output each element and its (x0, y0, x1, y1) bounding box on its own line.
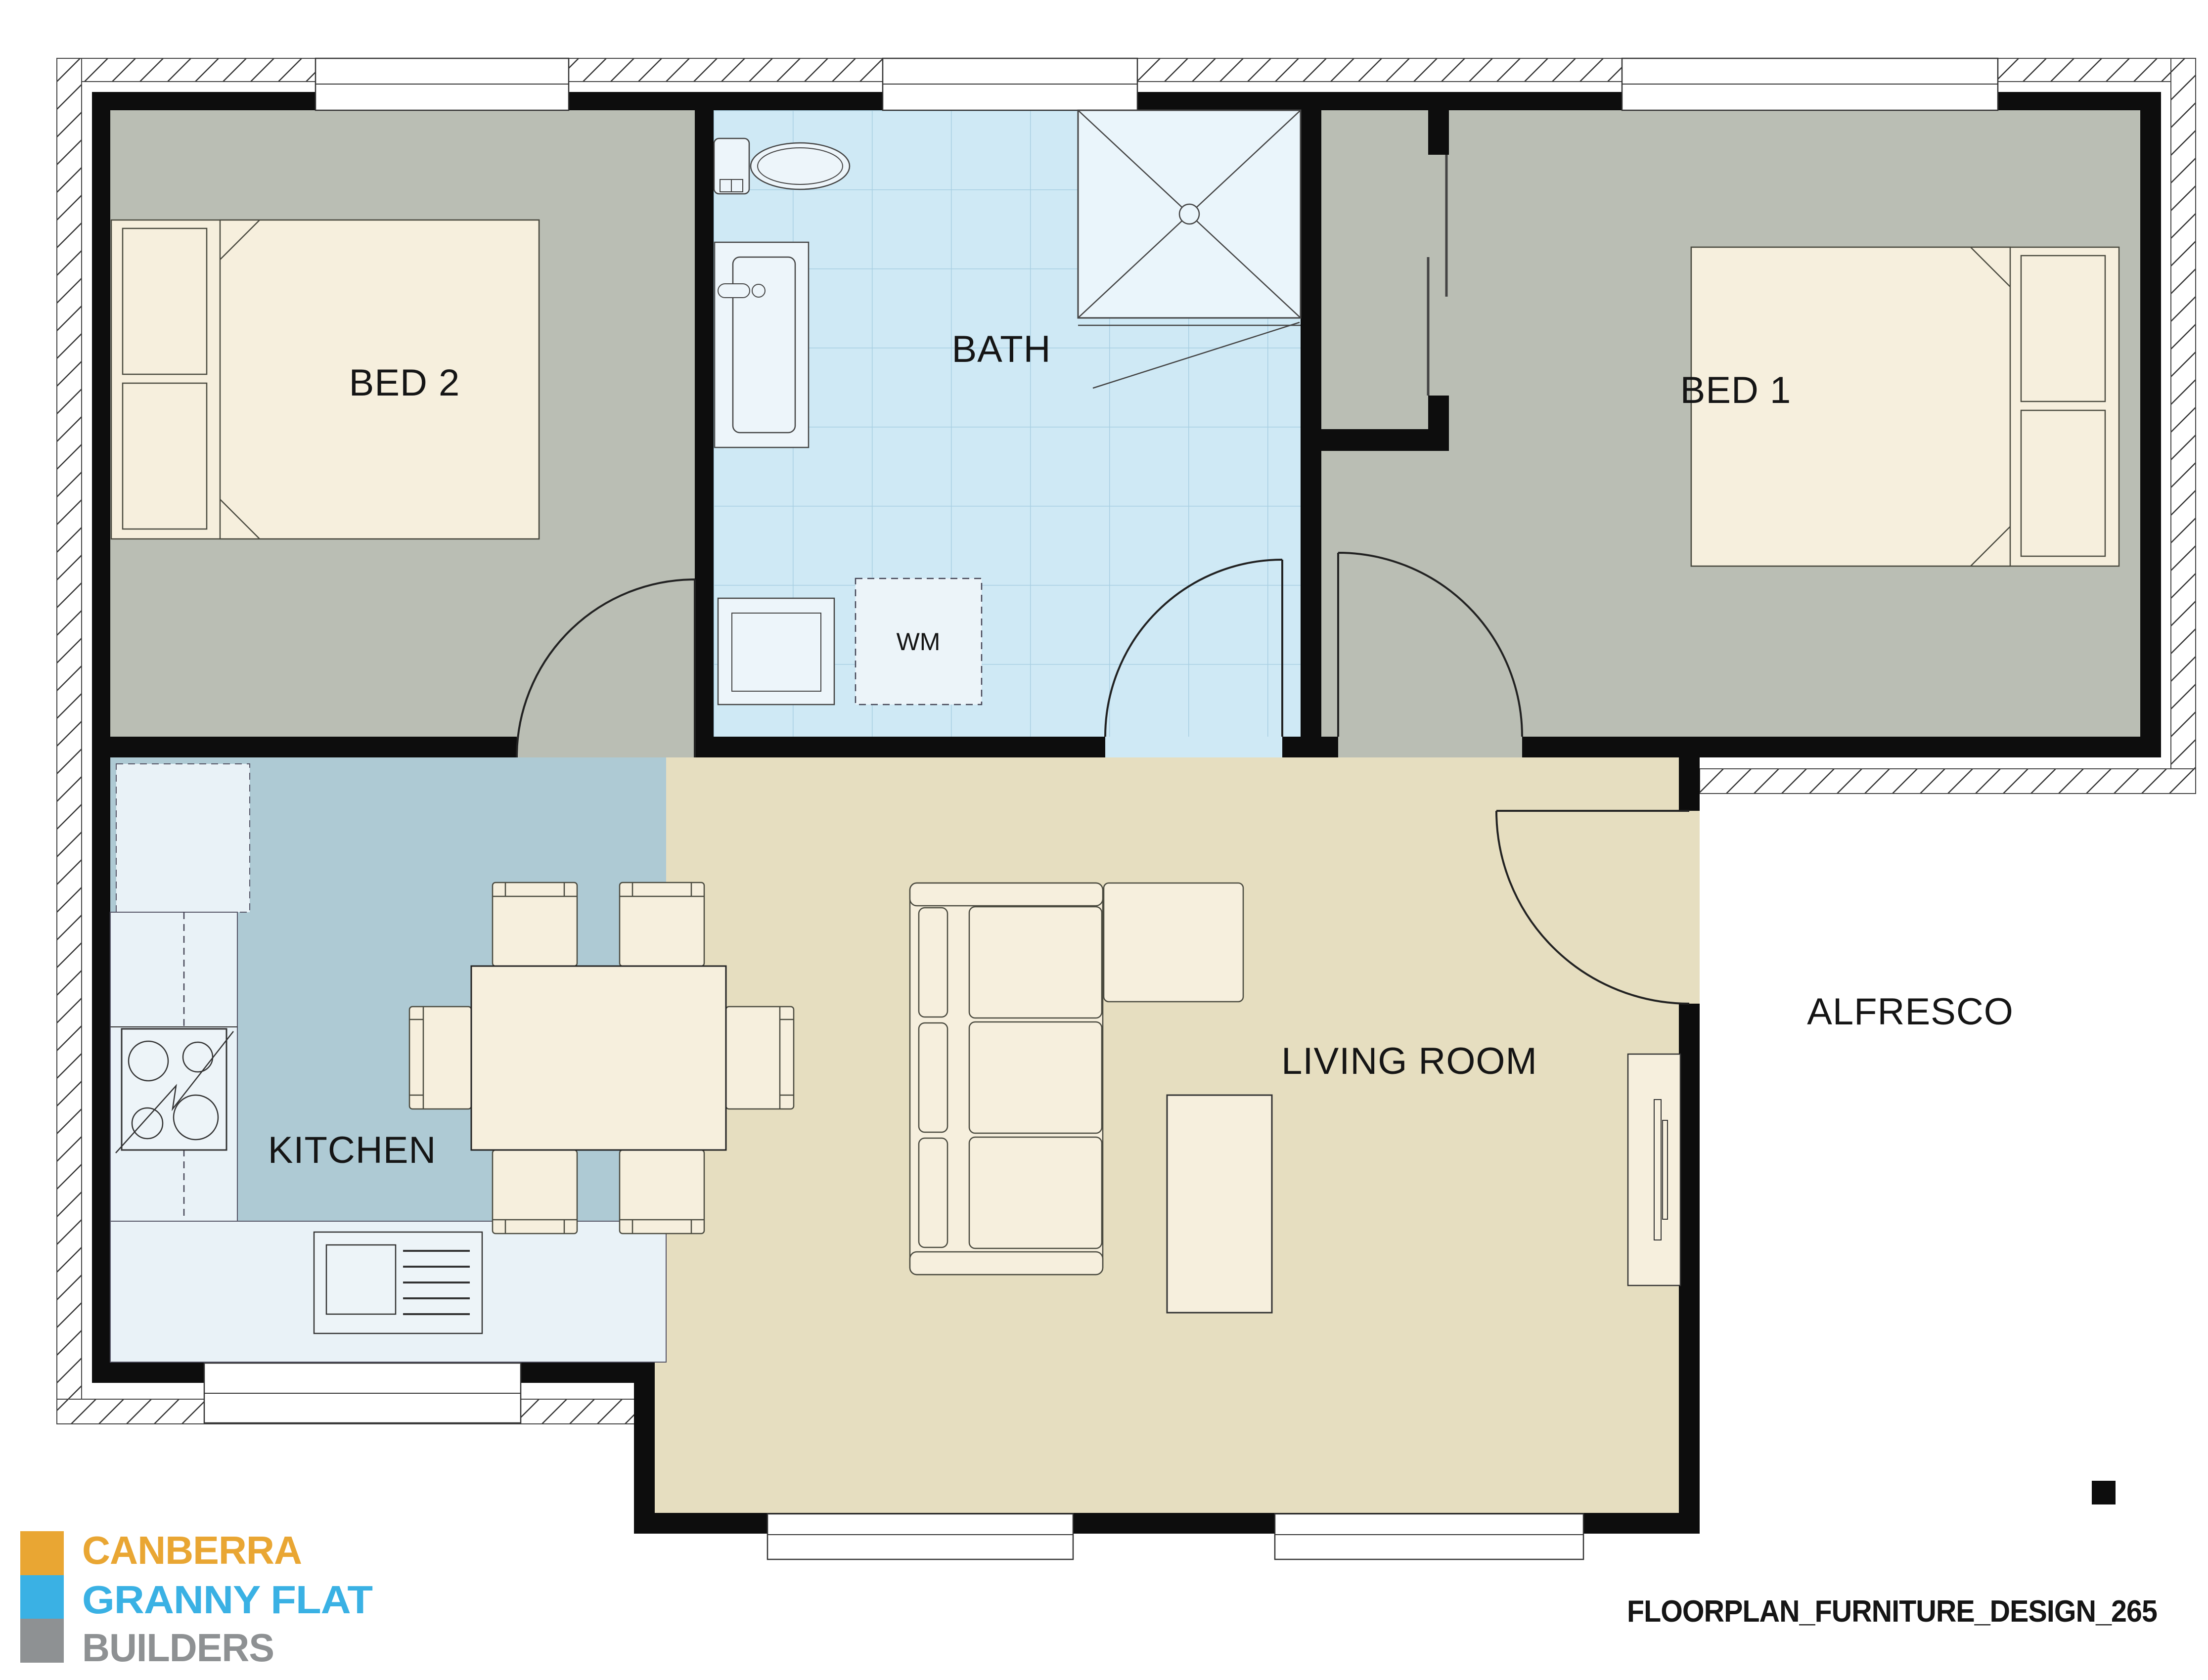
sofa-armrest-bottom (910, 1252, 1103, 1275)
label-bed2: BED 2 (349, 362, 460, 404)
brand-word-2: GRANNY FLAT (82, 1578, 373, 1622)
label-kitchen: KITCHEN (268, 1129, 437, 1171)
wall-right (2140, 92, 2161, 757)
label-alfresco: ALFRESCO (1807, 991, 2014, 1033)
dining-chair-left (409, 1007, 471, 1109)
dining-chair-bottom-2 (620, 1150, 704, 1234)
label-washing-machine: WM (897, 628, 941, 656)
logo-bar-gray (20, 1619, 64, 1663)
dining-chair-top-1 (493, 883, 577, 966)
page: BED 2 BATH BED 1 KITCHEN LIVING ROOM ALF… (0, 0, 2208, 1680)
label-bed1: BED 1 (1680, 369, 1792, 411)
fridge-space (116, 764, 250, 912)
hatch-strip-left (57, 58, 82, 1424)
hatch-strip-alfresco-top (1700, 769, 2196, 794)
wall-living-right-stub (1679, 757, 1700, 811)
wall-bed2-bath (695, 110, 714, 737)
label-bath: BATH (951, 328, 1051, 370)
bed2-pillow-2 (123, 383, 207, 529)
stove-cooktop (122, 1029, 226, 1150)
label-living: LIVING ROOM (1281, 1040, 1537, 1082)
wall-closet-stub (1428, 110, 1449, 155)
hatch-strip-right (2171, 58, 2196, 794)
sofa-armrest-top (910, 883, 1103, 906)
brand-word-3: BUILDERS (82, 1626, 274, 1670)
logo-bar-blue (20, 1575, 64, 1619)
bed1-door-gap (1338, 737, 1522, 757)
window-living-2 (1275, 1514, 1583, 1559)
floor-plan-canvas: BED 2 BATH BED 1 KITCHEN LIVING ROOM ALF… (0, 0, 2208, 1680)
laundry-tub (718, 598, 834, 705)
bath-door-gap (1105, 737, 1282, 757)
bed2-pillow-1 (123, 228, 207, 374)
wall-living-left-lower (634, 1362, 655, 1534)
wall-bath-bed1 (1301, 110, 1321, 737)
bed1-pillow-1 (2021, 256, 2105, 401)
sofa-cushions (919, 907, 1102, 1248)
wall-living-right (1679, 1004, 1700, 1534)
dining-chair-top-2 (620, 883, 704, 966)
coffee-table (1167, 1095, 1272, 1313)
shower-drain (1179, 204, 1199, 224)
alfresco-door-gap (1679, 811, 1700, 1004)
dining-chair-right (726, 1007, 794, 1109)
window-living-1 (767, 1514, 1073, 1559)
brand-word-1: CANBERRA (82, 1528, 302, 1572)
wall-closet-vertical (1428, 396, 1449, 451)
vanity-unit (715, 242, 809, 447)
bed2-furniture (111, 220, 539, 539)
sofa-chaise (1104, 883, 1243, 1002)
alfresco-post (2092, 1481, 2116, 1504)
dining-table (471, 966, 726, 1150)
bed1-pillow-2 (2021, 410, 2105, 556)
drawing-id: FLOORPLAN_FURNITURE_DESIGN_265 (1627, 1594, 2157, 1629)
dining-chair-bottom-1 (493, 1150, 577, 1234)
vanity-tap (718, 284, 750, 298)
toilet-bowl (751, 143, 850, 189)
bed2-door-gap (517, 737, 695, 757)
logo-bar-orange (20, 1531, 64, 1575)
